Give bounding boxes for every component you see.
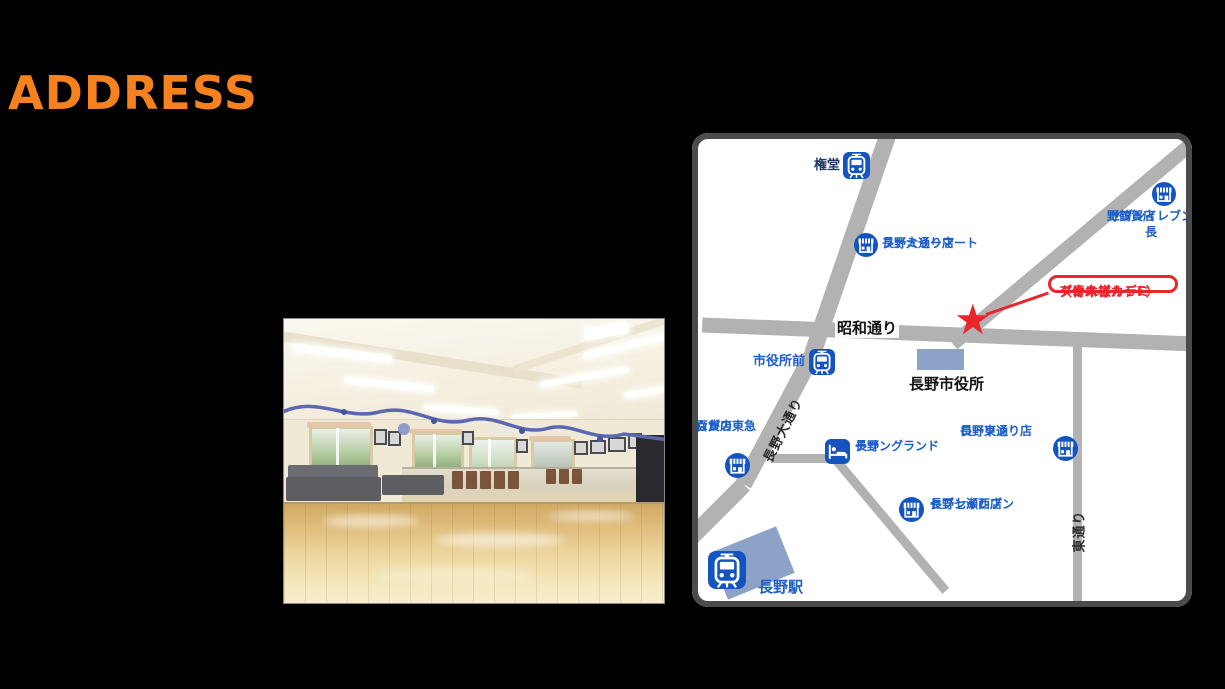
store-icon (854, 233, 878, 257)
tram-icon (809, 349, 835, 375)
road-showa-dori (702, 318, 1192, 352)
road-side-street-diagonal (832, 456, 949, 594)
city-hall-building (917, 349, 964, 370)
access-map: 昭和通り 長野大通り 東通り 権堂 セブンイレブン長 野鶴賀店 ファミリーマート… (692, 133, 1192, 607)
street-label-higashi-dori: 東通り (1069, 508, 1088, 556)
station-label-gondo: 権堂 (795, 158, 840, 175)
garland-icon (284, 319, 664, 489)
floor-wall-edge (284, 502, 664, 504)
train-icon (843, 152, 870, 179)
destination-star-icon: ★ (954, 299, 992, 341)
place-label-line: 長野大通り店 (882, 236, 954, 252)
place-label-line: 百貨店 (696, 419, 732, 435)
page-title: ADDRESS (8, 70, 258, 116)
store-icon (1152, 182, 1176, 206)
place-label-line: 長野 (855, 439, 879, 455)
destination-callout: ダンスアカデミー アオキ様 （青木ビル５F） (1048, 275, 1178, 293)
store-icon (899, 497, 924, 522)
floor-reflection (374, 567, 534, 583)
store-icon (1053, 436, 1078, 461)
store-icon (725, 453, 750, 478)
hotel-icon (825, 439, 850, 464)
floor-reflection (434, 533, 564, 547)
road-higashi-dori (1073, 346, 1082, 602)
place-label-line: 長野七瀬西店 (930, 497, 1002, 513)
place-label-line: 野鶴賀店 (1107, 209, 1155, 225)
station-label-nagano: 長野駅 (758, 578, 803, 598)
street-label-showa-dori: 昭和通り (835, 317, 899, 338)
slide-canvas: { "title": "ADDRESS", "colors": { "title… (0, 0, 1225, 689)
studio-photo (283, 318, 665, 604)
station-label-shiyakusho-mae: 市役所前 (745, 354, 805, 371)
floor-reflection (549, 511, 634, 521)
place-label-line: 長野東通り店 (960, 424, 1032, 440)
train-icon (708, 551, 746, 589)
floor-reflection (324, 515, 419, 527)
building-label-city-hall: 長野市役所 (894, 373, 999, 394)
destination-line: （青木ビル５F） (1059, 284, 1159, 302)
